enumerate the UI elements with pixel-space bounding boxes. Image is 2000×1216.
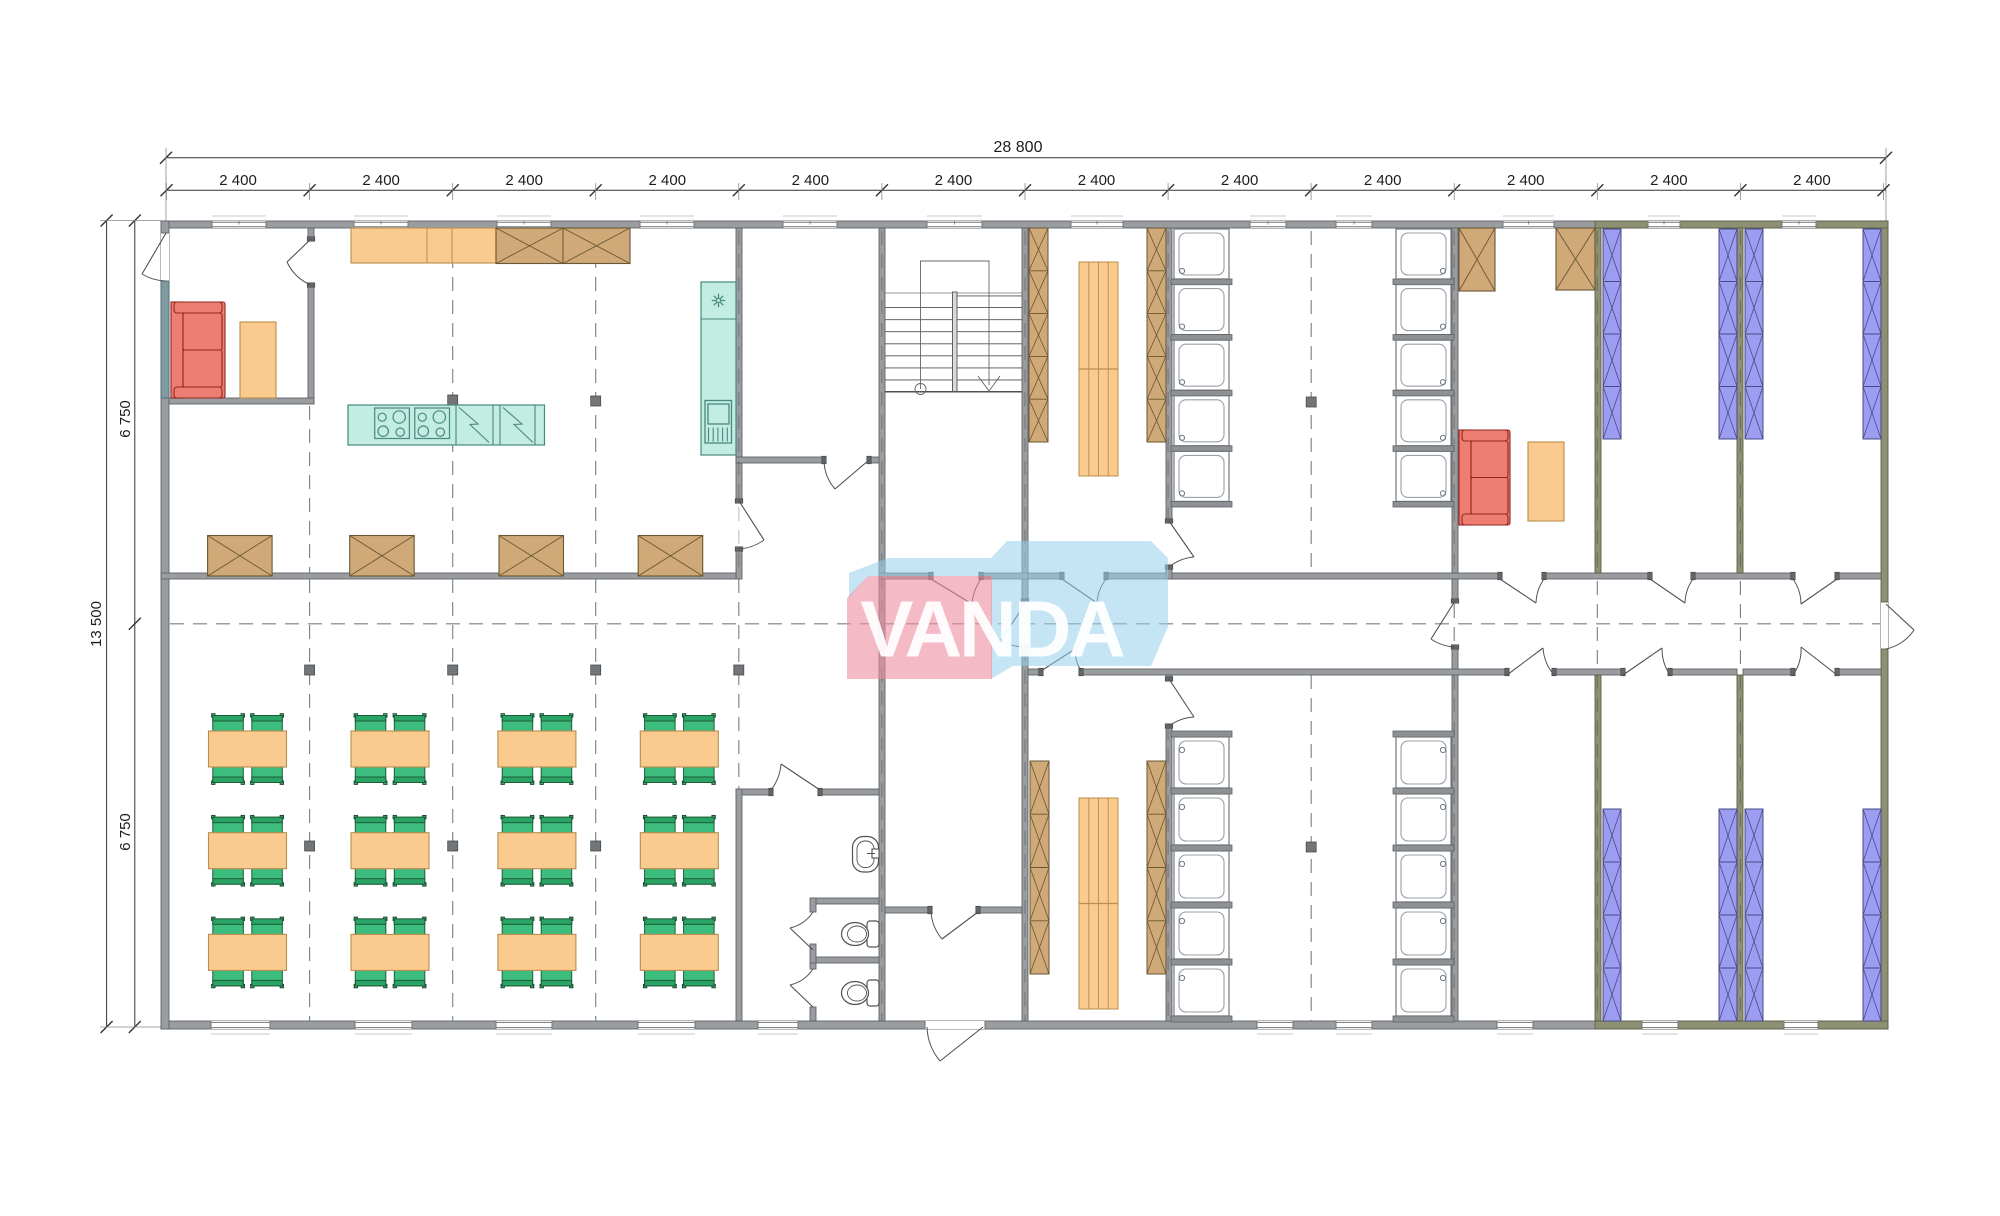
- svg-text:2 400: 2 400: [1364, 172, 1402, 189]
- svg-text:13 500: 13 500: [88, 601, 105, 647]
- svg-text:28 800: 28 800: [994, 139, 1043, 156]
- svg-text:6 750: 6 750: [117, 813, 134, 851]
- svg-text:2 400: 2 400: [1507, 172, 1545, 189]
- svg-text:6 750: 6 750: [117, 400, 134, 438]
- svg-text:2 400: 2 400: [1793, 172, 1831, 189]
- svg-text:2 400: 2 400: [362, 172, 400, 189]
- svg-text:2 400: 2 400: [219, 172, 257, 189]
- svg-text:2 400: 2 400: [1650, 172, 1688, 189]
- svg-text:VANDA: VANDA: [860, 585, 1124, 674]
- svg-text:2 400: 2 400: [935, 172, 973, 189]
- svg-text:2 400: 2 400: [1078, 172, 1116, 189]
- svg-text:2 400: 2 400: [505, 172, 543, 189]
- svg-text:2 400: 2 400: [1221, 172, 1259, 189]
- svg-text:2 400: 2 400: [649, 172, 687, 189]
- svg-text:2 400: 2 400: [792, 172, 830, 189]
